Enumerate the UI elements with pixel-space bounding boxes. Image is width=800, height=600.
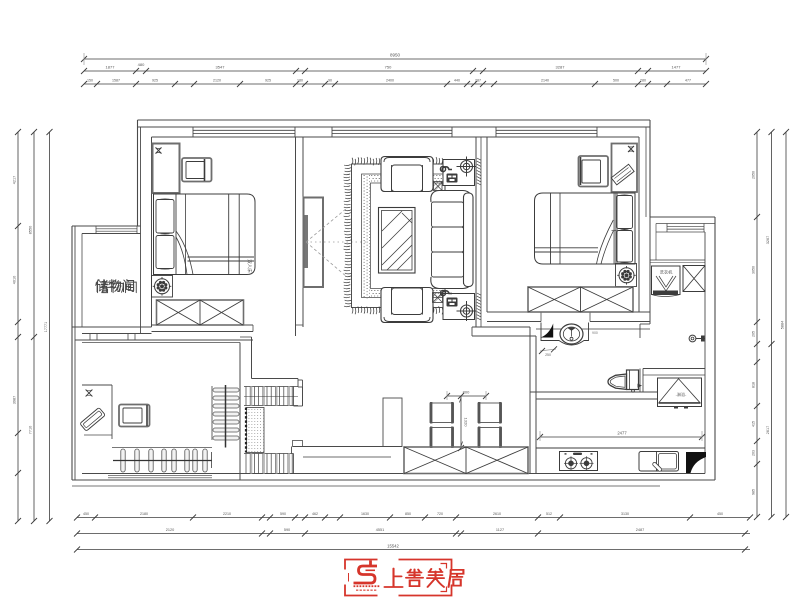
svg-text:3547: 3547 — [216, 65, 226, 70]
svg-text:450: 450 — [717, 512, 723, 516]
svg-text:2210: 2210 — [223, 512, 231, 516]
svg-text:1477: 1477 — [672, 65, 682, 70]
svg-text:477: 477 — [685, 79, 691, 83]
svg-text:3130: 3130 — [621, 512, 629, 516]
svg-text:203: 203 — [752, 450, 756, 456]
svg-text:925: 925 — [152, 79, 158, 83]
svg-text:280: 280 — [640, 79, 646, 83]
svg-text:2617: 2617 — [766, 426, 770, 434]
svg-text:7710: 7710 — [29, 426, 33, 434]
svg-text:250: 250 — [545, 353, 551, 357]
svg-text:3287: 3287 — [556, 65, 566, 70]
svg-text:8950: 8950 — [390, 53, 401, 58]
svg-text:480: 480 — [138, 62, 145, 67]
svg-text:1320: 1320 — [464, 418, 469, 428]
svg-text:-淋浴-: -淋浴- — [676, 391, 687, 397]
svg-text:3987: 3987 — [13, 396, 17, 404]
svg-text:440: 440 — [454, 79, 460, 83]
svg-text:720: 720 — [437, 512, 443, 516]
svg-text:2120: 2120 — [213, 79, 221, 83]
svg-text:985: 985 — [752, 489, 756, 495]
svg-text:储物间: 储物间 — [95, 279, 136, 294]
svg-text:818: 818 — [752, 382, 756, 388]
svg-text:900: 900 — [592, 331, 598, 335]
svg-text:90: 90 — [328, 79, 332, 83]
svg-text:462: 462 — [312, 512, 318, 516]
svg-text:750: 750 — [385, 65, 392, 70]
svg-text:2180: 2180 — [140, 512, 148, 516]
svg-text:双人床: 双人床 — [246, 259, 253, 273]
svg-text:2487: 2487 — [636, 528, 644, 532]
svg-text:3267: 3267 — [766, 236, 770, 244]
svg-text:4217: 4217 — [13, 176, 17, 184]
svg-text:洗衣机: 洗衣机 — [660, 269, 673, 276]
svg-text:15542: 15542 — [387, 544, 399, 549]
svg-text:512: 512 — [546, 512, 552, 516]
svg-text:850: 850 — [405, 512, 411, 516]
svg-text:1877: 1877 — [106, 65, 116, 70]
svg-text:1587: 1587 — [112, 79, 120, 83]
svg-text:500: 500 — [613, 79, 619, 83]
svg-text:415: 415 — [752, 421, 756, 427]
svg-text:180: 180 — [297, 79, 303, 83]
svg-text:4551: 4551 — [376, 528, 384, 532]
svg-text:1630: 1630 — [361, 512, 369, 516]
svg-text:925: 925 — [265, 79, 271, 83]
svg-text:450: 450 — [83, 512, 89, 516]
svg-text:2050: 2050 — [752, 171, 756, 179]
svg-text:590: 590 — [280, 512, 286, 516]
svg-text:2400: 2400 — [386, 79, 394, 83]
svg-text:8550: 8550 — [29, 226, 33, 234]
svg-text:2140: 2140 — [541, 79, 549, 83]
svg-text:590: 590 — [284, 528, 290, 532]
svg-text:150: 150 — [87, 79, 93, 83]
svg-text:4010: 4010 — [13, 276, 17, 284]
svg-text:1127: 1127 — [496, 528, 504, 532]
svg-text:205: 205 — [752, 331, 756, 337]
svg-text:5884: 5884 — [781, 321, 785, 329]
svg-text:2120: 2120 — [166, 528, 174, 532]
svg-text:2610: 2610 — [493, 512, 501, 516]
svg-text:17771: 17771 — [44, 322, 48, 333]
svg-text:2477: 2477 — [617, 431, 627, 436]
svg-text:3050: 3050 — [752, 266, 756, 274]
svg-text:287: 287 — [475, 79, 481, 83]
